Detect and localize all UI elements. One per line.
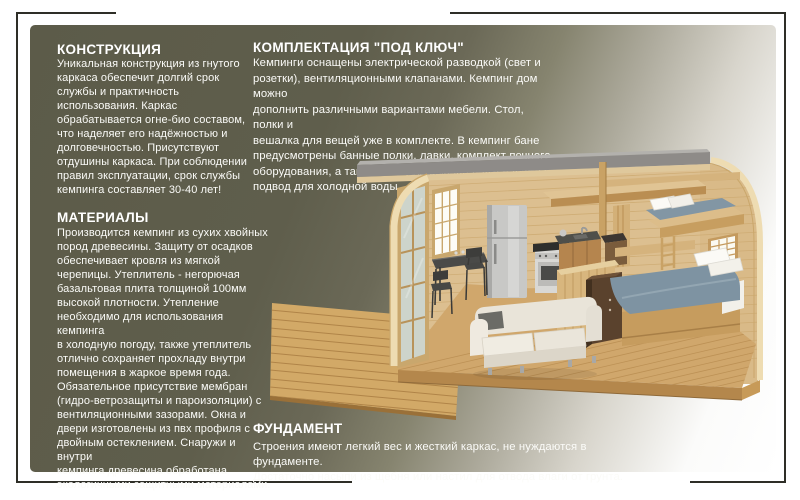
crop-mark-right: [784, 13, 786, 483]
glass-door: [390, 174, 429, 368]
section-body-materials: Производится кемпинг из сухих хвойных по…: [57, 226, 272, 492]
section-heading-construction: КОНСТРУКЦИЯ: [57, 42, 161, 57]
section-body-foundation: Строения имеют легкий вес и жесткий карк…: [253, 440, 653, 485]
crop-mark-bottom-right: [690, 481, 786, 483]
section-body-construction: Уникальная конструкция из гнутого каркас…: [57, 57, 272, 197]
section-heading-foundation: ФУНДАМЕНТ: [253, 421, 342, 436]
front-window: [432, 184, 460, 260]
camping-pod-illustration: [270, 148, 770, 420]
crop-mark-top-left: [16, 12, 116, 14]
brochure-page: { "page": { "background": "#ffffff", "pa…: [0, 0, 800, 500]
crop-mark-left: [16, 13, 18, 483]
crop-mark-top-right: [450, 12, 786, 14]
fridge: [487, 205, 527, 298]
section-heading-equipment: КОМПЛЕКТАЦИЯ "ПОД КЛЮЧ": [253, 40, 464, 55]
section-heading-materials: МАТЕРИАЛЫ: [57, 210, 149, 225]
